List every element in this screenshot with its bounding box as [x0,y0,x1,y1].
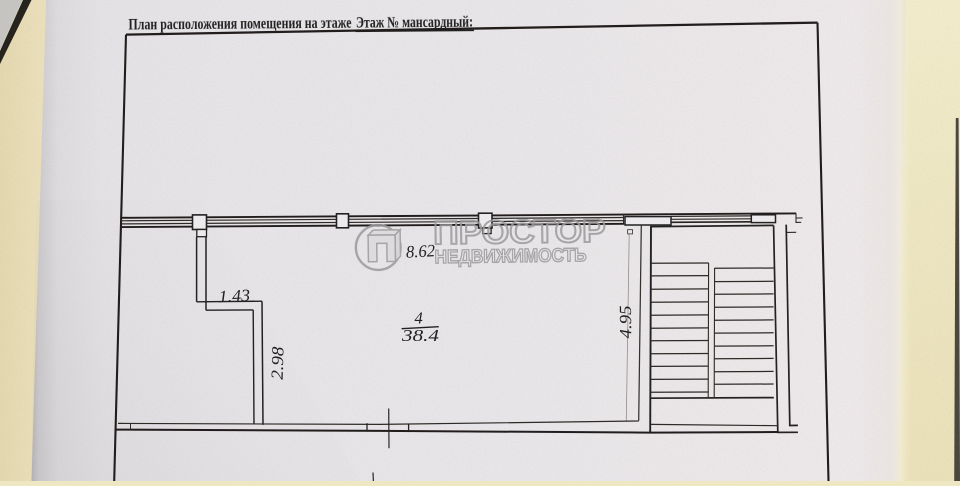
svg-text:2.98: 2.98 [268,346,288,380]
svg-text:4: 4 [415,309,423,328]
svg-text:НЕДВИЖИМОСТЬ: НЕДВИЖИМОСТЬ [434,245,586,268]
svg-text:1.43: 1.43 [218,286,250,307]
svg-text:38.4: 38.4 [401,326,440,345]
svg-text:4.95: 4.95 [616,305,635,338]
svg-text:8.62: 8.62 [405,240,435,262]
